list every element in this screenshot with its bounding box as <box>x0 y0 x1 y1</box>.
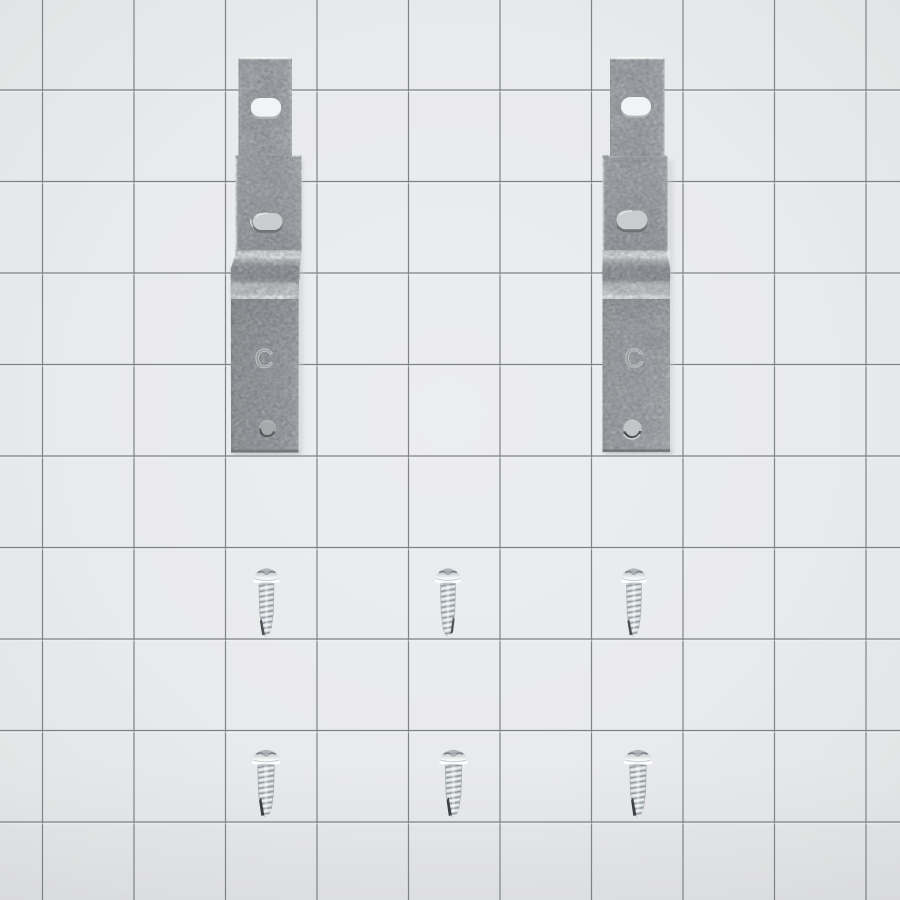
svg-text:C: C <box>625 343 644 373</box>
svg-text:C: C <box>255 344 274 374</box>
